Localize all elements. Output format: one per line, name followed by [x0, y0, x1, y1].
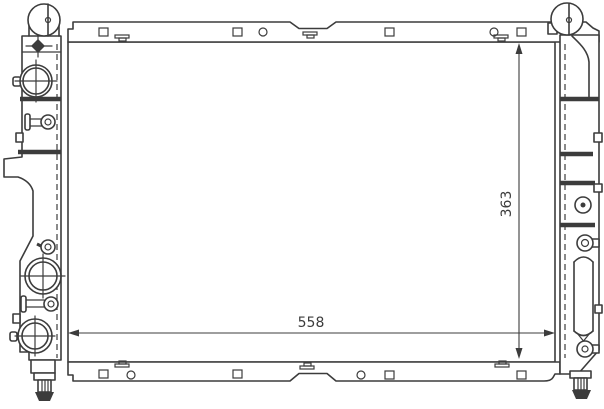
top-bracket-outline	[68, 22, 599, 42]
bottom-bracket-outline	[68, 362, 560, 381]
radiator-technical-drawing: 558 363	[0, 0, 604, 409]
right-tank	[548, 3, 602, 399]
side-tab	[594, 184, 602, 192]
top-mounting-bracket	[68, 22, 599, 42]
side-tab	[594, 133, 602, 142]
right-drain-plug	[570, 371, 591, 399]
right-cap	[548, 3, 583, 35]
left-tank	[4, 4, 65, 401]
radiator-drawing-canvas: 558 363	[0, 0, 604, 409]
bottom-mounting-bracket	[68, 361, 560, 381]
core-height-label: 363	[499, 191, 515, 218]
side-tab	[16, 133, 23, 142]
sensor-port	[575, 197, 591, 213]
radiator-core	[68, 42, 555, 362]
left-drain-plug	[31, 360, 55, 401]
core-width-label: 558	[298, 315, 325, 331]
filler-cap-circle	[28, 4, 60, 36]
core-outline	[68, 42, 555, 362]
side-tab	[13, 314, 20, 323]
side-tab	[595, 305, 602, 313]
